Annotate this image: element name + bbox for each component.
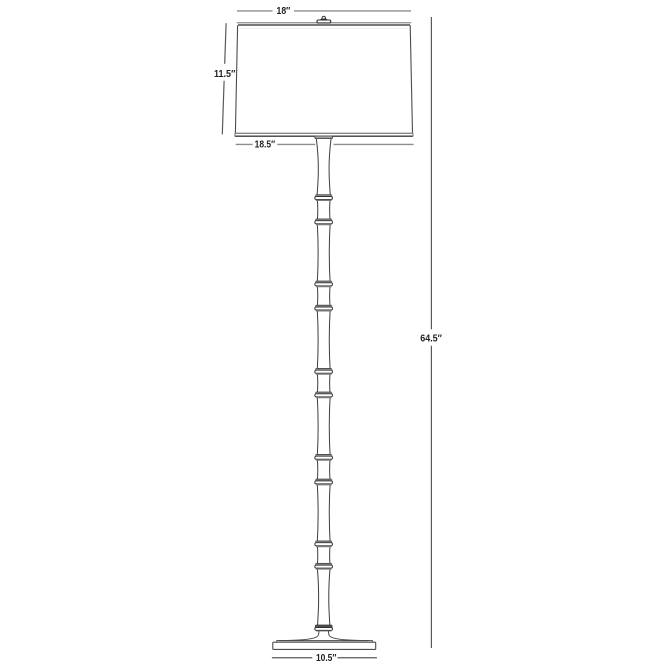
svg-text:18.5″: 18.5″	[255, 139, 276, 150]
svg-text:18″: 18″	[277, 6, 291, 17]
svg-text:10.5″: 10.5″	[316, 653, 337, 664]
svg-text:11.5″: 11.5″	[214, 69, 236, 80]
svg-text:64.5″: 64.5″	[420, 334, 442, 345]
